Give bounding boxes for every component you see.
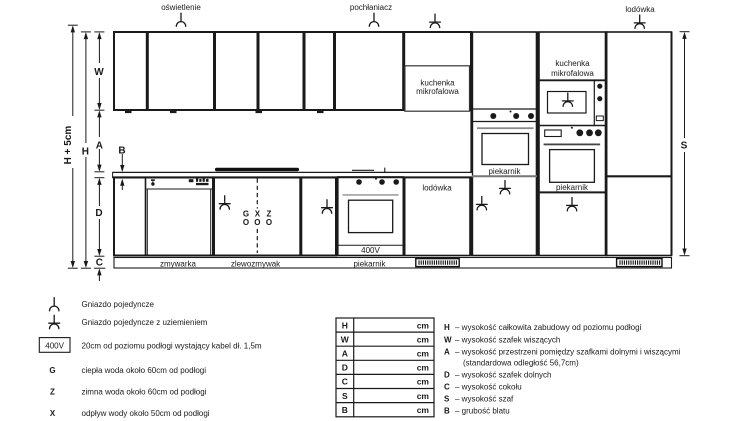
svg-text:Z: Z (50, 388, 55, 397)
svg-text:mikrofalowa: mikrofalowa (416, 87, 459, 96)
svg-text:B: B (342, 405, 348, 415)
svg-text:oświetlenie: oświetlenie (161, 3, 201, 12)
svg-text:A: A (342, 349, 348, 359)
svg-text:O: O (266, 218, 272, 227)
svg-text:400V: 400V (361, 246, 380, 255)
svg-text:C: C (96, 258, 103, 269)
svg-text:Gniazdo pojedyncze z uziemieni: Gniazdo pojedyncze z uziemieniem (82, 318, 208, 327)
svg-text:O: O (254, 218, 260, 227)
svg-text:cm: cm (417, 349, 430, 359)
svg-text:– wysokość cokołu: – wysokość cokołu (455, 383, 522, 392)
svg-text:H: H (444, 323, 450, 332)
svg-text:cm: cm (417, 320, 430, 330)
svg-text:odpływ wody około 50cm od podł: odpływ wody około 50cm od podłogi (82, 409, 210, 418)
svg-text:– grubość blatu: – grubość blatu (455, 407, 510, 416)
svg-text:zlewozmywak: zlewozmywak (231, 259, 281, 268)
svg-text:lodówka: lodówka (422, 184, 452, 193)
svg-text:– wysokość przestrzeni pomięd: – wysokość przestrzeni pomiędzy szafkami… (455, 348, 681, 357)
svg-text:B: B (444, 407, 450, 416)
svg-text:cm: cm (417, 391, 430, 401)
svg-text:piekarnik: piekarnik (353, 259, 386, 268)
svg-text:400V: 400V (45, 341, 64, 350)
svg-text:C: C (342, 377, 348, 387)
svg-text:(standardowa odległość 56,7cm): (standardowa odległość 56,7cm) (463, 359, 579, 368)
svg-text:D: D (95, 208, 102, 219)
svg-text:pochłaniacz: pochłaniacz (350, 3, 392, 12)
svg-text:W: W (94, 67, 104, 78)
svg-text:– wysokość szafek wiszących: – wysokość szafek wiszących (455, 336, 560, 345)
svg-text:A: A (444, 348, 450, 357)
svg-text:O: O (243, 218, 249, 227)
svg-text:G: G (49, 366, 55, 375)
svg-text:H: H (82, 147, 89, 158)
svg-text:cm: cm (417, 405, 430, 415)
svg-text:cm: cm (417, 377, 430, 387)
svg-text:D: D (342, 363, 348, 373)
svg-text:H + 5cm: H + 5cm (63, 126, 74, 165)
svg-text:cm: cm (417, 363, 430, 373)
svg-text:S: S (444, 395, 450, 404)
svg-text:ciepła woda około 60cm od podł: ciepła woda około 60cm od podłogi (82, 366, 207, 375)
svg-text:20cm od poziomu podłogi wystaj: 20cm od poziomu podłogi wystający kabel … (82, 341, 262, 350)
svg-text:C: C (444, 383, 450, 392)
svg-text:– wysokość szaf: – wysokość szaf (455, 395, 514, 404)
svg-text:zimna woda około 60cm od podło: zimna woda około 60cm od podłogi (82, 388, 207, 397)
svg-text:zmywarka: zmywarka (160, 259, 197, 268)
svg-text:D: D (444, 371, 450, 380)
svg-text:lodówka: lodówka (625, 5, 655, 14)
svg-text:X: X (50, 409, 56, 418)
svg-text:S: S (342, 391, 348, 401)
svg-text:S: S (681, 141, 688, 152)
svg-text:W: W (341, 334, 350, 344)
svg-text:B: B (118, 145, 125, 156)
svg-text:– wysokość szafek dolnych: – wysokość szafek dolnych (455, 371, 552, 380)
svg-text:kuchenka: kuchenka (555, 59, 590, 68)
svg-text:piekarnik: piekarnik (556, 183, 589, 192)
svg-text:piekarnik: piekarnik (488, 167, 521, 176)
svg-text:cm: cm (417, 334, 430, 344)
svg-text:– wysokość całkowita zabudowy: – wysokość całkowita zabudowy od poziomu… (455, 323, 642, 332)
svg-text:mikrofalowa: mikrofalowa (551, 69, 594, 78)
svg-text:A: A (96, 140, 103, 151)
svg-text:H: H (342, 320, 348, 330)
svg-text:W: W (444, 336, 452, 345)
svg-text:Gniazdo pojedyncze: Gniazdo pojedyncze (82, 300, 155, 309)
